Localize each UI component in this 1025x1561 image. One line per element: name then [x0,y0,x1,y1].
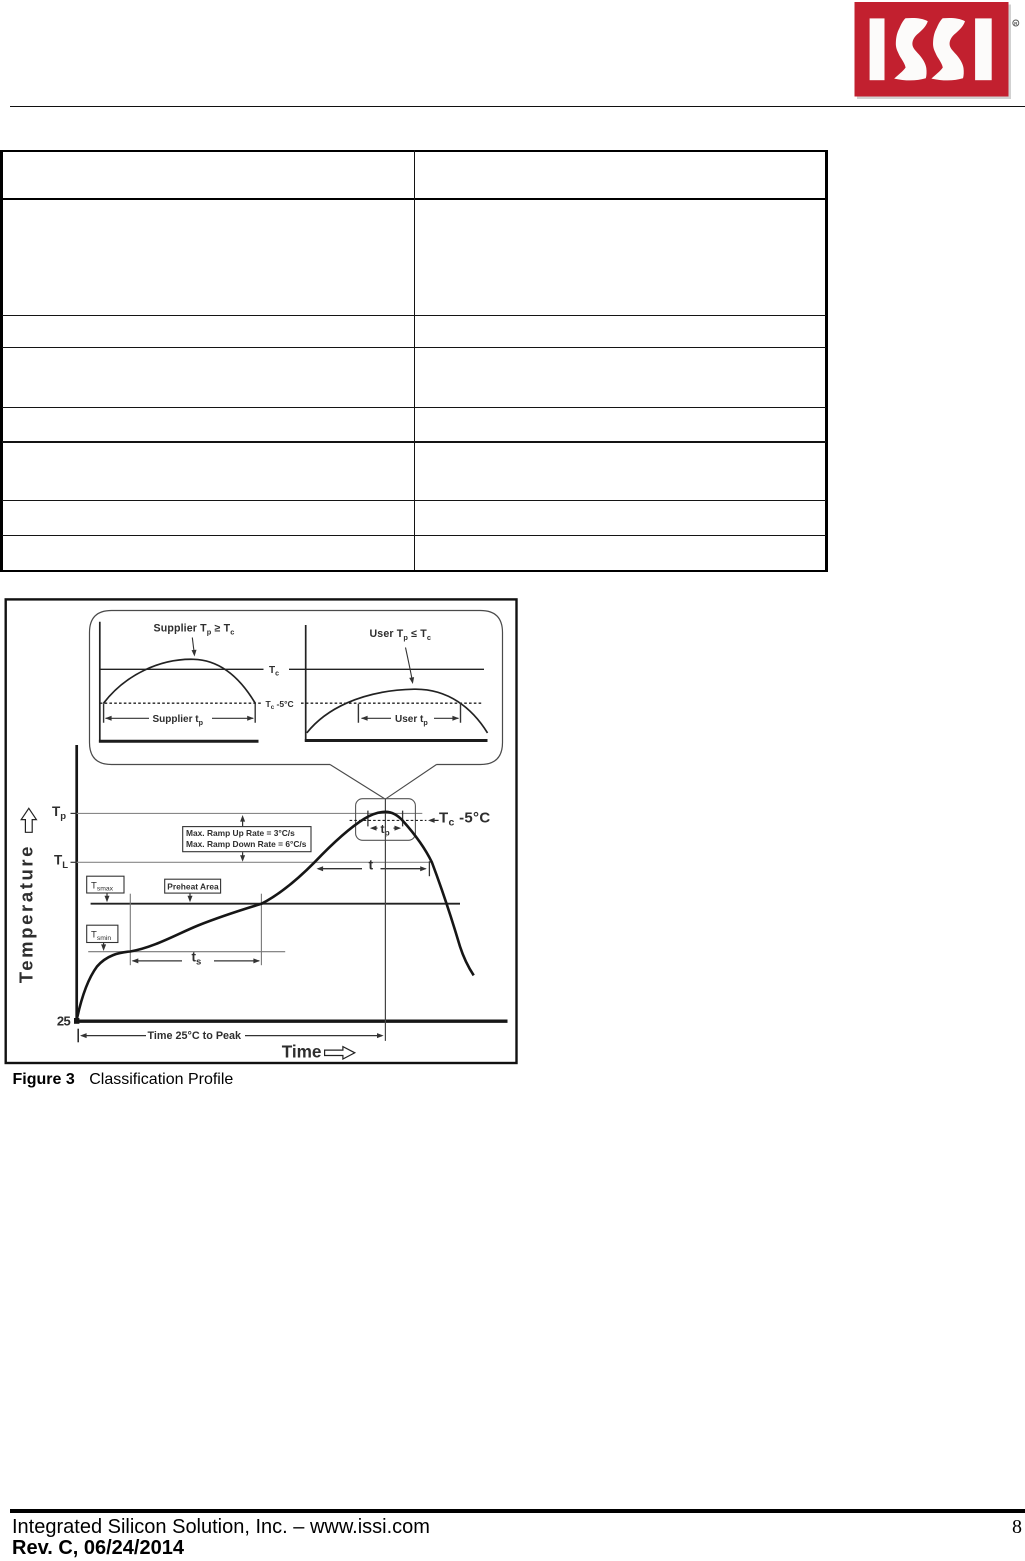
svg-text:t: t [369,856,374,872]
svg-text:Supplier Tp ≥ Tc: Supplier Tp ≥ Tc [154,622,235,636]
svg-text:25: 25 [57,1014,71,1029]
svg-text:User Tp ≤ Tc: User Tp ≤ Tc [370,628,432,642]
svg-text:Time 25°C to Peak: Time 25°C to Peak [148,1030,243,1042]
svg-text:Time: Time [282,1041,322,1061]
svg-text:Max. Ramp Down Rate = 6°C/s: Max. Ramp Down Rate = 6°C/s [186,839,307,849]
svg-text:Preheat Area: Preheat Area [167,882,219,892]
svg-text:Tc -5°C: Tc -5°C [439,809,490,828]
svg-text:Tp: Tp [52,804,66,822]
svg-text:Tc -5°C: Tc -5°C [266,699,294,711]
svg-text:User tp: User tp [395,714,428,727]
svg-text:Temperature: Temperature [16,844,37,983]
svg-text:TL: TL [54,853,68,871]
svg-text:Supplier tp: Supplier tp [153,714,204,727]
svg-text:ts: ts [192,950,202,968]
svg-text:Max. Ramp Up Rate = 3°C/s: Max. Ramp Up Rate = 3°C/s [186,828,295,838]
svg-text:Tc: Tc [269,665,279,678]
